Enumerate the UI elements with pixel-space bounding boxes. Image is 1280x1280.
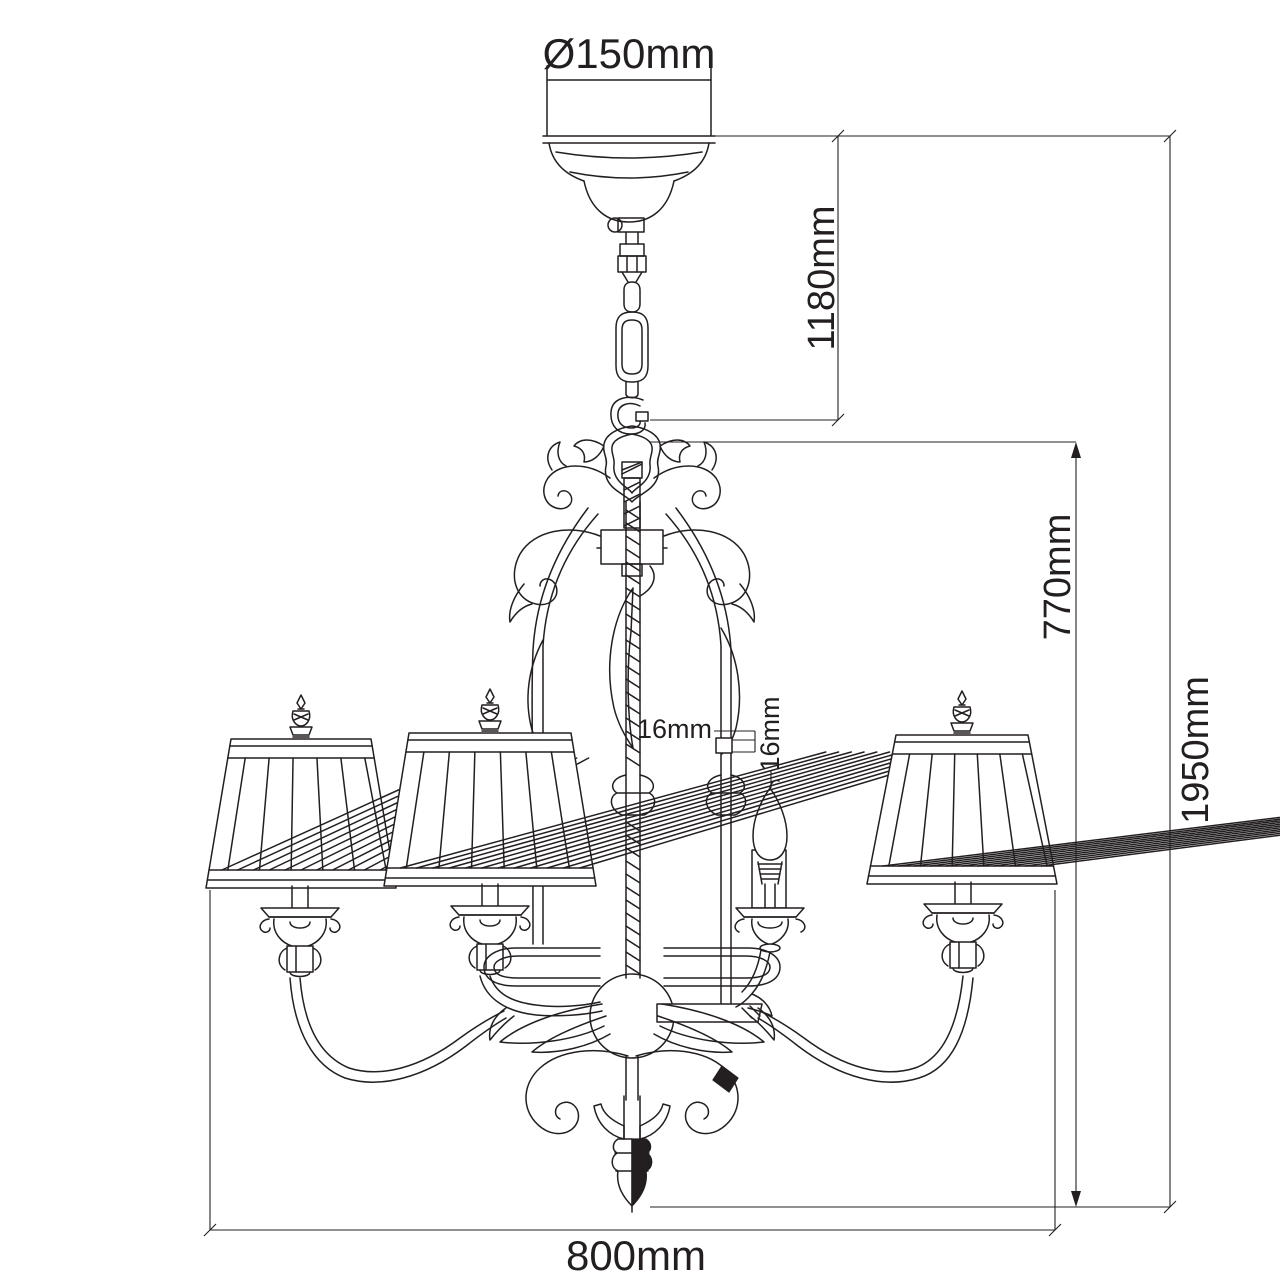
arms: [290, 976, 973, 1082]
suspension-chain: [608, 218, 648, 434]
lampshade: [867, 691, 1280, 884]
shade-finial: [290, 695, 312, 737]
candle-bulb-assembly: [735, 780, 805, 1016]
stem-tube-marker: [716, 738, 732, 753]
body-height-label: 770mm: [1037, 514, 1079, 641]
shade-finial: [479, 689, 501, 731]
chain-suspension-label: 1180mm: [801, 205, 843, 350]
lampshades: [206, 689, 1280, 888]
stem-tube-label: 16mm: [637, 714, 712, 744]
ceiling-canopy: [543, 66, 715, 222]
central-hub: [484, 948, 780, 1058]
chandelier-dimension-diagram: Ø150mm 1180mm 770mm 1950mm 800mm 16mm 16…: [0, 0, 1280, 1280]
bottom-scrolls: [526, 1051, 738, 1134]
shade-finial: [951, 691, 973, 733]
width-label: 800mm: [566, 1232, 706, 1279]
canopy-diameter-label: Ø150mm: [543, 30, 716, 77]
bottom-finial: [594, 1096, 670, 1212]
overall-height-label: 1950mm: [1175, 676, 1217, 824]
technical-drawing-canvas: Ø150mm 1180mm 770mm 1950mm 800mm 16mm 16…: [0, 0, 1280, 1280]
dimension-lines: [204, 130, 1176, 1236]
candle-socket-label: 16mm: [755, 696, 785, 771]
